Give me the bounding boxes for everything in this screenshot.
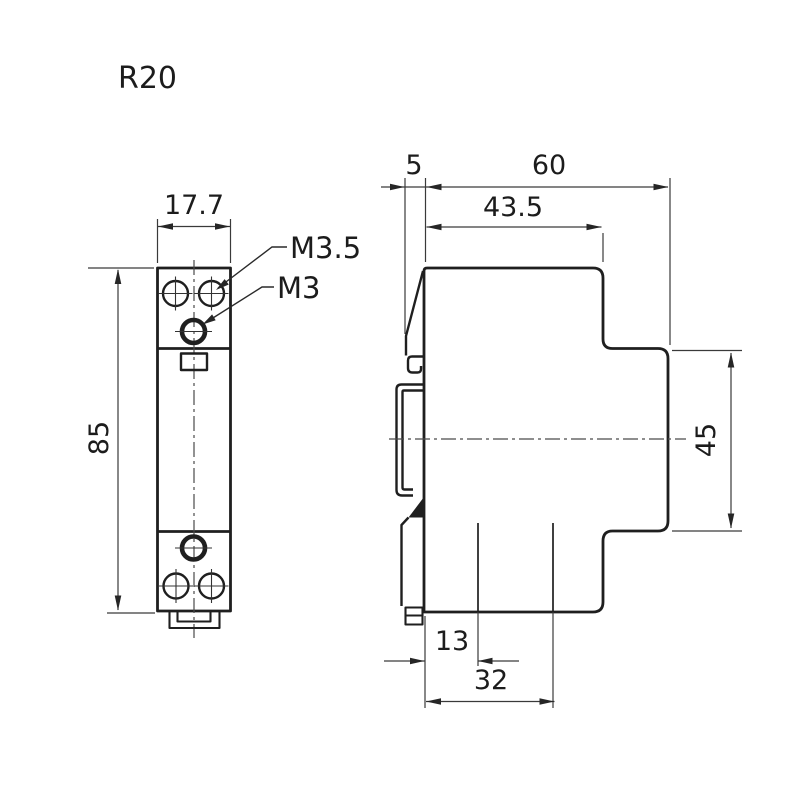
din-clip-arm-outer [397, 385, 425, 496]
arrowhead [728, 353, 735, 368]
arrowhead [587, 224, 602, 231]
dimension-drawing-canvas: R20 [0, 0, 800, 800]
upper-body-depth-label: 43.5 [483, 192, 543, 223]
din-offset-label: 5 [405, 150, 422, 181]
arrowhead [654, 184, 669, 191]
arrowhead [115, 269, 122, 284]
din-clip-leg [402, 518, 409, 607]
side-body-outline [424, 268, 668, 612]
front-dimensions: 17.7 85 M3.5 M3 [84, 190, 361, 613]
overall-depth-label: 60 [532, 150, 566, 181]
arrowhead [478, 658, 493, 665]
din-clip-latch [409, 497, 425, 518]
front-view [158, 260, 231, 638]
arrowhead [158, 223, 173, 230]
screw-size-label-m35: M3.5 [290, 231, 361, 265]
din-rail-height-label: 45 [691, 423, 722, 457]
front-width-label: 17.7 [164, 190, 224, 221]
arrowhead [427, 224, 442, 231]
technical-drawing-page: R20 [0, 0, 800, 800]
side-dimensions: 5 60 43.5 45 13 32 [381, 150, 742, 708]
front-height-label: 85 [84, 421, 115, 455]
arrowhead [203, 314, 216, 324]
screw-size-label-m3: M3 [277, 271, 320, 305]
din-clip-hook [408, 357, 424, 373]
arrowhead [426, 698, 441, 705]
arrowhead [728, 514, 735, 529]
side-front-slant [406, 271, 423, 356]
arrowhead [540, 698, 555, 705]
arrowhead [427, 184, 442, 191]
arrowhead [390, 184, 405, 191]
terminal-inset-label: 13 [435, 626, 469, 657]
side-view [389, 268, 686, 625]
din-clip-arm-inner [403, 391, 425, 490]
arrowhead [215, 223, 230, 230]
arrowhead [410, 658, 425, 665]
model-title: R20 [118, 61, 177, 96]
arrowhead [115, 596, 122, 611]
terminal-span-label: 32 [474, 665, 508, 696]
